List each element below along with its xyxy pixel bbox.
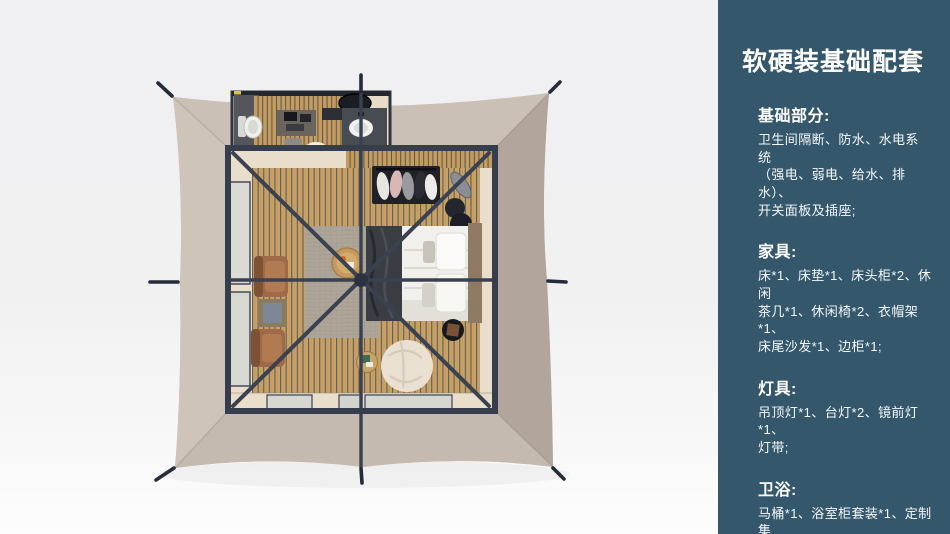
bed [366, 223, 482, 323]
tent-illustration [0, 0, 718, 534]
panel-content: 基础部分: 卫生间隔断、防水、水电系统 （强电、弱电、给水、排水）、 开关面板及… [758, 102, 932, 534]
window [229, 292, 250, 386]
section-lighting: 灯具: 吊顶灯*1、台灯*2、镜前灯*1、 灯带; [758, 375, 932, 457]
pillow [436, 233, 466, 270]
canvas-right-face [497, 93, 553, 467]
bedside-table [442, 319, 464, 341]
section-furniture: 家具: 床*1、床垫*1、床头柜*2、休闲 茶几*1、休闲椅*2、衣帽架*1、 … [758, 238, 932, 355]
canvas-bottom-face [175, 413, 553, 468]
coffee-table [258, 299, 287, 327]
roof-frame [228, 93, 495, 467]
headboard [468, 223, 482, 323]
toilet [238, 116, 262, 138]
tent-top-view-render [0, 0, 718, 534]
lounge-chair [254, 256, 288, 297]
glass-door [339, 395, 362, 409]
stake-top-left [158, 83, 172, 96]
section-heading: 基础部分: [758, 102, 932, 126]
canvas-left-face [173, 97, 226, 468]
hall-slat-band [346, 151, 492, 168]
frame-hub [354, 273, 368, 287]
wardrobe-rack [372, 166, 440, 204]
section-bathroom: 卫浴: 马桶*1、浴室柜套装*1、定制集 成卫浴*1; [758, 476, 932, 534]
stake-mid-right [548, 281, 566, 282]
section-body: 吊顶灯*1、台灯*2、镜前灯*1、 灯带; [758, 404, 932, 457]
slide: 软硬装基础配套 基础部分: 卫生间隔断、防水、水电系统 （强电、弱电、给水、排水… [0, 0, 950, 534]
vanity-desk [277, 110, 316, 136]
section-body: 马桶*1、浴室柜套装*1、定制集 成卫浴*1; [758, 505, 932, 534]
section-heading: 灯具: [758, 375, 932, 399]
info-panel: 软硬装基础配套 基础部分: 卫生间隔断、防水、水电系统 （强电、弱电、给水、排水… [718, 0, 950, 534]
section-body: 卫生间隔断、防水、水电系统 （强电、弱电、给水、排水）、 开关面板及插座; [758, 131, 932, 219]
annex-accent [234, 91, 241, 95]
glass-door [267, 395, 312, 409]
section-basics: 基础部分: 卫生间隔断、防水、水电系统 （强电、弱电、给水、排水）、 开关面板及… [758, 102, 932, 219]
window [229, 182, 250, 284]
left-windows [229, 182, 250, 386]
stake-top-right [550, 82, 560, 92]
stake-bottom-center [361, 468, 362, 483]
section-heading: 卫浴: [758, 476, 932, 500]
section-heading: 家具: [758, 238, 932, 262]
bean-bag-pouf [381, 340, 433, 392]
section-body: 床*1、床垫*1、床头柜*2、休闲 茶几*1、休闲椅*2、衣帽架*1、 床尾沙发… [758, 267, 932, 355]
accent-pillow [422, 283, 435, 307]
glass-door [365, 395, 452, 409]
accent-pillow [423, 241, 435, 263]
panel-title: 软硬装基础配套 [742, 42, 932, 78]
